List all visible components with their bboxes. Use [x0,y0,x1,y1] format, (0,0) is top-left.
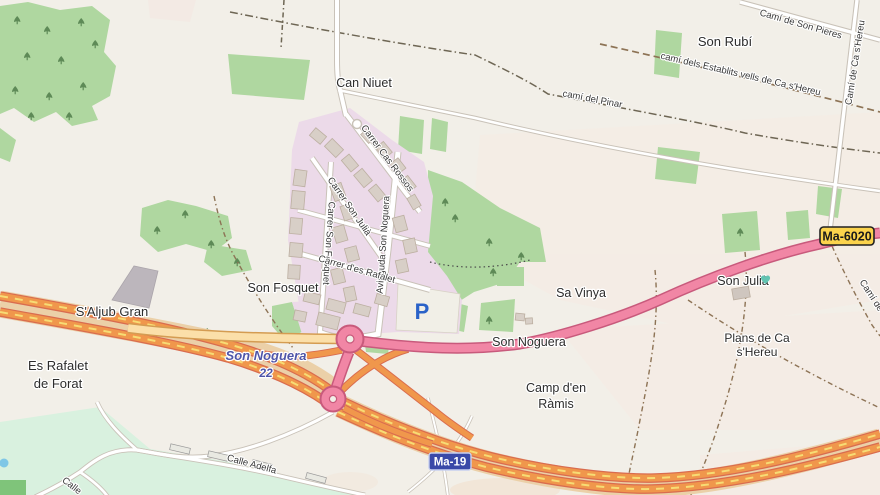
label-son-fosquet: Son Fosquet [248,281,319,295]
shield-ma19: Ma-19 [429,453,471,470]
shield-ma6020-text: Ma-6020 [822,230,871,244]
shield-ma19-text: Ma-19 [434,457,467,469]
label-son-julia: Son Julià [717,274,768,288]
label-junction-exit: 22 [258,366,273,380]
label-sa-vinya: Sa Vinya [556,286,606,300]
label-can-niuet: Can Niuet [336,76,392,90]
label-son-noguera-farm: Son Noguera [492,335,566,349]
label-son-rubi: Son Rubí [698,34,753,49]
label-saljub-gran: S'Aljub Gran [76,304,149,319]
label-plans-2: s'Hereu [737,345,778,359]
label-junction-name: Son Noguera [226,348,307,363]
parking-icon: P [415,299,430,324]
label-es-rafalet-2: de Forat [34,376,83,391]
label-es-rafalet-1: Es Rafalet [28,358,88,373]
label-camp-den-ramis-1: Camp d'en [526,381,586,395]
label-camp-den-ramis-2: Ràmis [538,397,573,411]
shield-ma6020: Ma-6020 [820,227,874,245]
osm-map[interactable]: Camí de Son Pieres camí dels Establits v… [0,0,880,495]
map-canvas[interactable]: Camí de Son Pieres camí dels Establits v… [0,0,880,495]
label-plans-1: Plans de Ca [724,331,790,345]
